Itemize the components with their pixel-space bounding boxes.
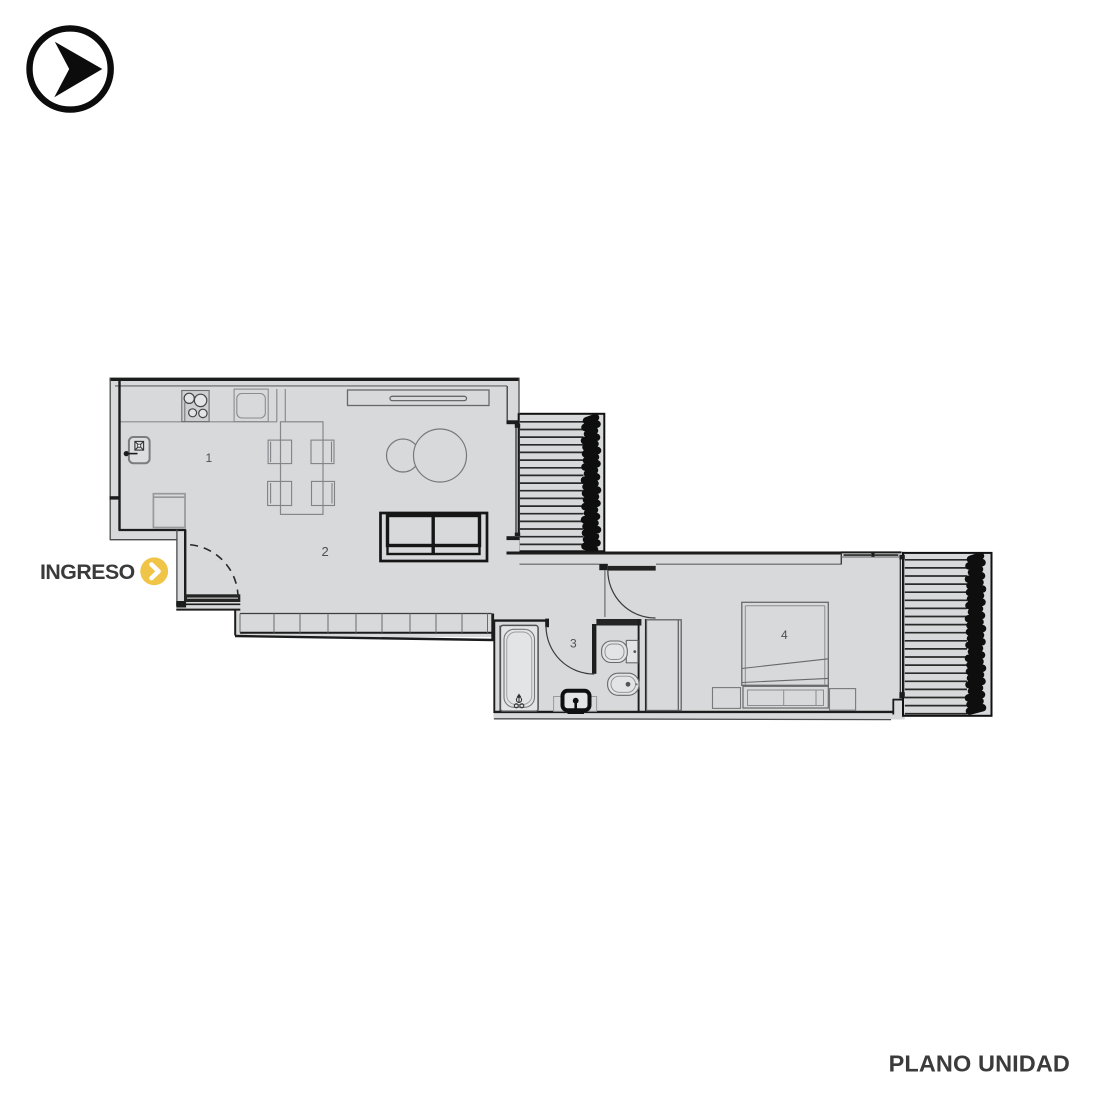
svg-text:3: 3 (570, 637, 577, 651)
svg-text:INGRESO: INGRESO (40, 560, 135, 584)
svg-text:PLANO UNIDAD: PLANO UNIDAD (889, 1051, 1070, 1077)
svg-text:4: 4 (781, 628, 788, 642)
svg-text:2: 2 (322, 544, 329, 559)
svg-text:1: 1 (206, 451, 213, 465)
